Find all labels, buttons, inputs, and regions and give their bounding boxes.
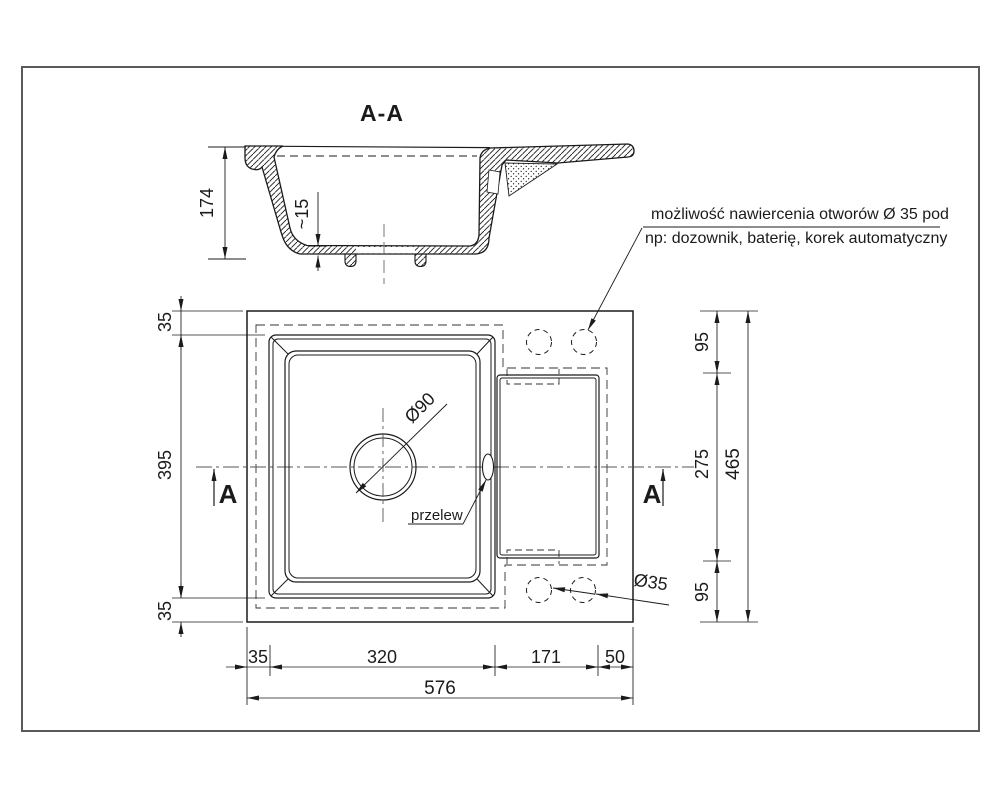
drill-note-line2: np: dozownik, baterię, korek automatyczn… xyxy=(645,230,947,247)
overflow-label: przelew xyxy=(411,507,463,524)
sink-technical-drawing: A-A 174 ~15 xyxy=(0,0,1000,800)
dim-left-mid-label: 395 xyxy=(155,450,175,480)
section-bottom-recess xyxy=(356,247,415,253)
section-foot-right xyxy=(415,254,426,267)
dim-left-bottom-label: 35 xyxy=(155,601,175,621)
section-title: A-A xyxy=(360,100,404,126)
dim-bottom-1-label: 35 xyxy=(248,647,268,667)
dim-bottom-3-label: 171 xyxy=(531,647,561,667)
dim-right-mid-label: 275 xyxy=(692,449,712,479)
dim-right-bottom-label: 95 xyxy=(692,582,712,602)
section-foot-left xyxy=(345,254,356,267)
section-marker-left-label: A xyxy=(219,479,238,509)
dim-bottom-total-label: 576 xyxy=(424,678,456,699)
dim-right-total-label: 465 xyxy=(723,448,744,480)
dim-174-label: 174 xyxy=(197,188,217,218)
technical-drawing-page: A-A 174 ~15 xyxy=(0,0,1000,800)
dim-left-top-label: 35 xyxy=(155,312,175,332)
section-overflow-slot xyxy=(487,170,500,194)
overflow-opening xyxy=(483,454,494,480)
drill-note-line1: możliwość nawiercenia otworów Ø 35 pod xyxy=(651,206,949,223)
dim-right-top-label: 95 xyxy=(692,332,712,352)
dim-15-label: ~15 xyxy=(292,199,312,230)
section-marker-right-label: A xyxy=(643,479,662,509)
dim-bottom-4-label: 50 xyxy=(605,647,625,667)
dim-bottom-2-label: 320 xyxy=(367,647,397,667)
